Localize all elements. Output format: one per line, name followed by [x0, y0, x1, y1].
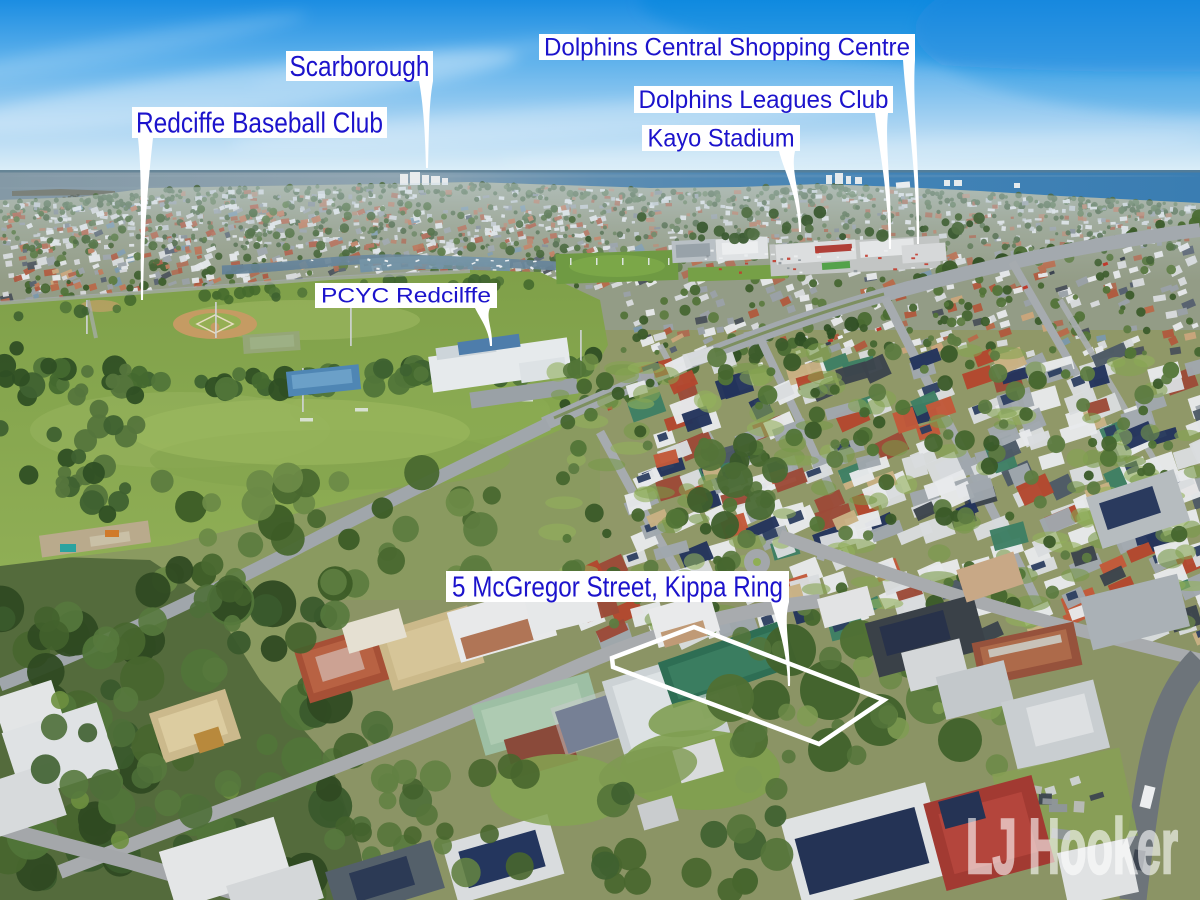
- svg-text:Dolphins Leagues Club: Dolphins Leagues Club: [639, 86, 889, 114]
- svg-text:PCYC Redcilffe: PCYC Redcilffe: [321, 285, 491, 308]
- svg-text:LJ Hooker: LJ Hooker: [966, 802, 1178, 890]
- svg-text:Scarborough: Scarborough: [290, 51, 430, 83]
- svg-text:5 McGregor Street, Kippa Ring: 5 McGregor Street, Kippa Ring: [452, 572, 783, 604]
- svg-text:Dolphins Central Shopping Cent: Dolphins Central Shopping Centre: [544, 34, 910, 62]
- svg-text:Kayo Stadium: Kayo Stadium: [648, 125, 795, 153]
- svg-text:Redciffe Baseball Club: Redciffe Baseball Club: [136, 108, 383, 140]
